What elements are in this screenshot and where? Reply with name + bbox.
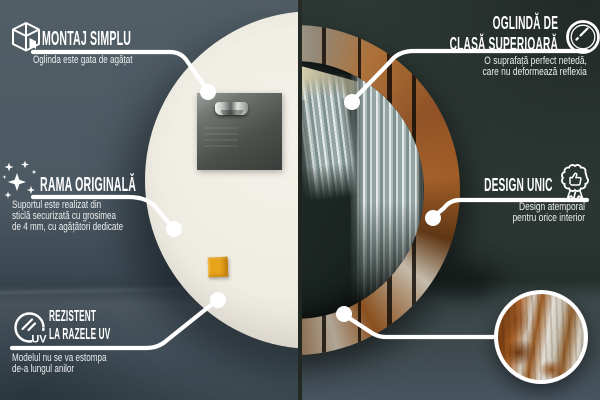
mirror-glass	[300, 61, 424, 319]
callout-title-text: REZISTENT	[49, 309, 96, 325]
callout-oglinda-body: O suprafață perfect netedă, care nu defo…	[483, 56, 587, 78]
callout-montaj-body: Oglinda este gata de agățat	[33, 55, 133, 66]
body-line: pentru orice interior	[512, 213, 585, 224]
orange-sticker	[208, 257, 229, 278]
callout-oglinda-title: OGLINDĂ DE CLASĂ SUPERIOARĂ	[361, 13, 558, 55]
split-divider	[298, 0, 302, 400]
callout-title-text: RAMA ORIGINALĂ	[40, 176, 136, 195]
etched-text-line	[204, 127, 238, 129]
curtain-reflection	[350, 61, 424, 319]
callout-title-text: DESIGN UNIC	[484, 175, 553, 194]
etched-text-line	[204, 133, 238, 135]
etched-text-line	[204, 139, 238, 141]
callout-design-title: DESIGN UNIC	[428, 175, 553, 196]
product-infographic: MONTAJ SIMPLU Oglinda este gata de agăța…	[0, 0, 600, 400]
body-line: care nu deformează reflexia	[483, 67, 587, 78]
hanger-slot	[221, 110, 243, 116]
callout-design-body: Design atemporal pentru orice interior	[512, 202, 585, 224]
callout-uv-title: REZISTENT LA RAZELE UV	[49, 308, 165, 344]
callout-rama-body: Suportul este realizat din sticlă securi…	[12, 200, 123, 233]
etched-text-line	[204, 145, 238, 147]
uv-rays-icon: UV	[12, 311, 48, 347]
mounting-plate	[197, 93, 282, 170]
callout-uv-body: Modelul nu se va estompa de-a lungul ani…	[12, 353, 107, 375]
callout-title-text: MONTAJ SIMPLU	[42, 30, 131, 49]
callout-montaj-title: MONTAJ SIMPLU	[42, 30, 210, 50]
frame-texture-detail-circle	[494, 290, 588, 384]
callout-title-text: CLASĂ SUPERIOARĂ	[450, 34, 558, 53]
mirror-shine-icon	[564, 18, 600, 56]
callout-title-text: LA RAZELE UV	[49, 327, 110, 343]
sparkles-icon	[2, 160, 44, 202]
award-badge-icon	[556, 163, 594, 201]
uv-icon-label: UV	[31, 334, 47, 346]
body-line: de 4 mm, cu agățători dedicate	[12, 222, 123, 233]
callout-title-text: OGLINDĂ DE	[492, 13, 558, 32]
package-box-icon	[8, 19, 44, 55]
body-line: de-a lungul anilor	[12, 364, 107, 375]
body-line: Oglinda este gata de agățat	[33, 55, 133, 66]
callout-rama-title: RAMA ORIGINALĂ	[40, 176, 221, 196]
